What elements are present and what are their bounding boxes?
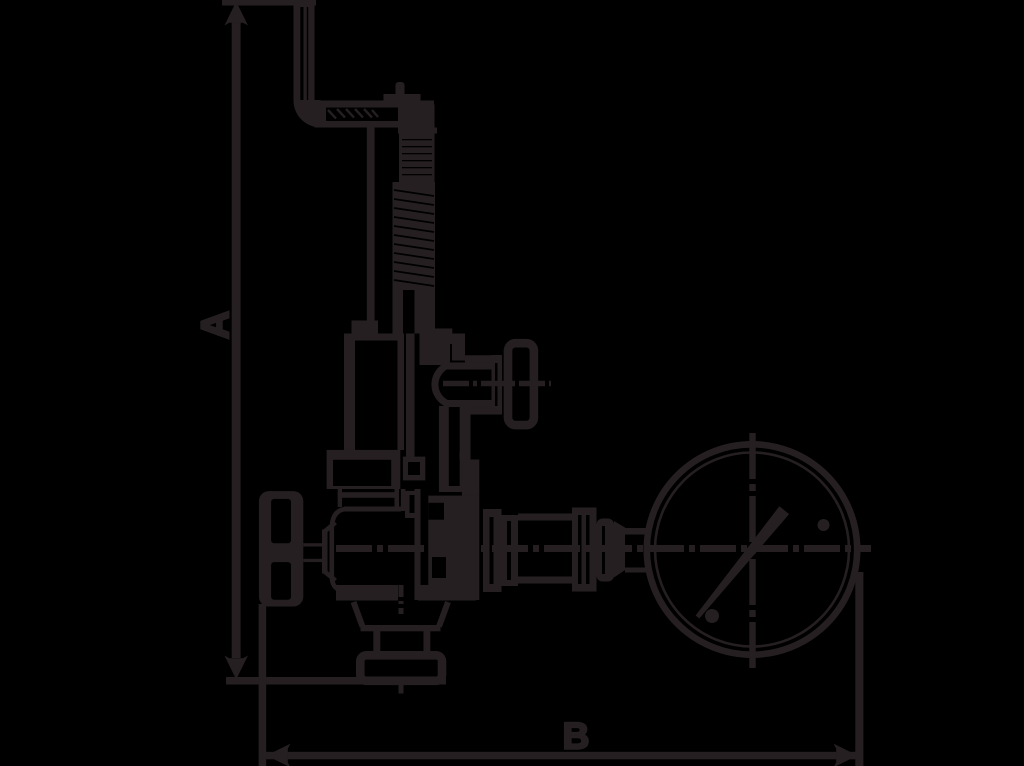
svg-text:B: B [563,716,590,757]
svg-text:A: A [194,311,237,339]
